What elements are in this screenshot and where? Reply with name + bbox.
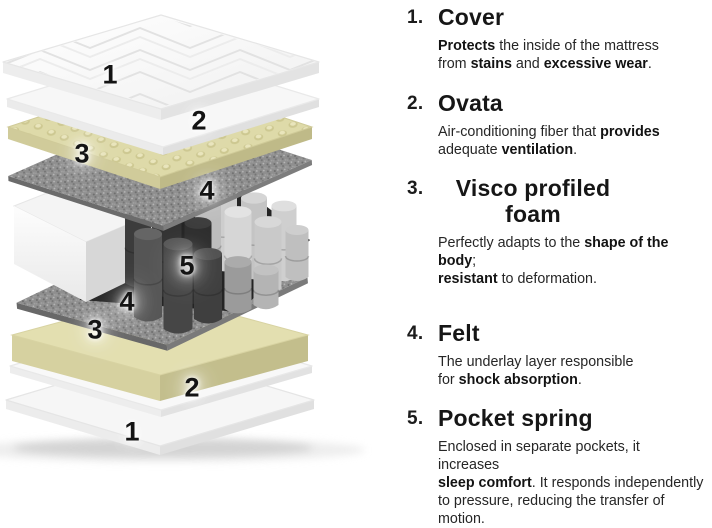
item-content: Cover Protects the inside of the mattres… [438,4,704,73]
layer-number-label: 1 [124,419,139,446]
item-number: 5. [407,405,438,528]
layer-number-label: 4 [119,289,134,316]
layer-list-item: 3. Visco profiled foam Perfectly adapts … [407,175,704,288]
item-content: Felt The underlay layer responsiblefor s… [438,320,704,389]
item-number: 4. [407,320,438,389]
item-description: Perfectly adapts to the shape of the bod… [438,234,704,288]
layer-number-label: 5 [179,253,194,280]
item-description: Enclosed in separate pockets, it increas… [438,438,704,528]
item-number: 3. [407,175,438,288]
layer-number-label: 4 [199,178,214,205]
layer-number-label: 3 [74,141,89,168]
item-content: Ovata Air-conditioning fiber that provid… [438,90,704,159]
pocket-spring-cylinder [225,256,252,313]
mattress-exploded-diagram: 123454321 [0,0,395,472]
item-description: Air-conditioning fiber that providesadeq… [438,123,704,159]
layer-list-item: 5. Pocket spring Enclosed in separate po… [407,405,704,528]
item-description: The underlay layer responsiblefor shock … [438,353,704,389]
item-title: Ovata [438,90,503,116]
item-title: Pocket spring [438,405,593,431]
item-title: Felt [438,320,480,346]
layer-number-label: 1 [102,62,117,89]
pocket-spring-cylinder [134,228,162,322]
layer-list-item: 1. Cover Protects the inside of the matt… [407,4,704,73]
pocket-spring-cylinder [254,265,279,310]
layer-list-item: 4. Felt The underlay layer responsiblefo… [407,320,704,389]
item-content: Pocket spring Enclosed in separate pocke… [438,405,704,528]
layer-list-item: 2. Ovata Air-conditioning fiber that pro… [407,90,704,159]
item-number: 2. [407,90,438,159]
pocket-spring-cylinder [194,248,222,324]
pocket-spring-cylinder [286,225,309,281]
layer-number-label: 3 [87,317,102,344]
item-title: Cover [438,4,504,30]
item-description: Protects the inside of the mattressfrom … [438,37,704,73]
item-title: Visco profiled foam [438,175,628,227]
item-number: 1. [407,4,438,73]
layer-info-list: 1. Cover Protects the inside of the matt… [395,0,712,472]
layer-number-label: 2 [184,375,199,402]
layer-number-label: 2 [191,108,206,135]
item-content: Visco profiled foam Perfectly adapts to … [438,175,704,288]
